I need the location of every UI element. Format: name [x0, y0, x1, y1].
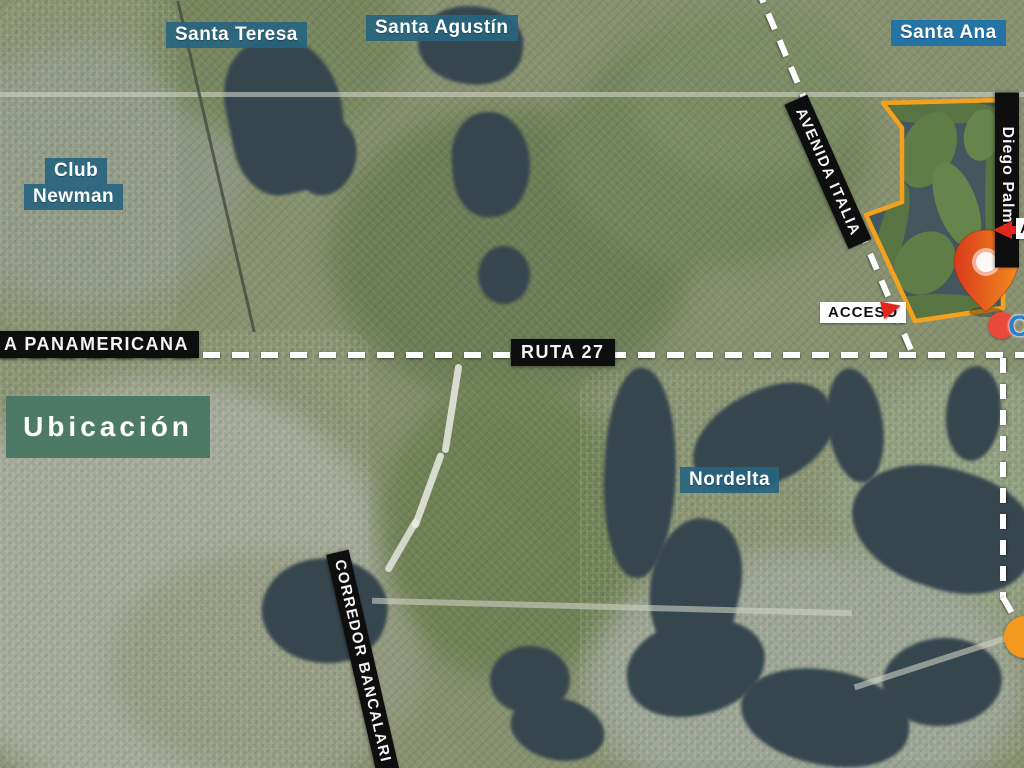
place-label-text: Santa Ana [900, 22, 997, 43]
place-label-club-newman-line1: Club [45, 158, 107, 184]
place-label-santa-agustin: Santa Agustín [366, 15, 518, 41]
ubicacion-text: Ubicación [23, 411, 193, 443]
acceso-label-partial: ACCESO [1016, 218, 1024, 239]
place-label-santa-ana: Santa Ana [891, 20, 1006, 46]
place-label-text: Santa Teresa [175, 24, 298, 45]
office-text: Of [1008, 310, 1024, 343]
place-label-nordelta: Nordelta [680, 467, 779, 493]
place-label-text: Newman [33, 186, 114, 207]
road-label-panamericana: A PANAMERICANA [0, 331, 199, 358]
place-label-text: Nordelta [689, 469, 770, 490]
road-label-text: A PANAMERICANA [4, 334, 189, 354]
road-label-diego-palma: Diego Palma [995, 92, 1019, 267]
ubicacion-banner: Ubicación [6, 396, 210, 458]
office-partial-text: Of [1008, 310, 1024, 344]
road-label-text: RUTA 27 [521, 342, 605, 362]
place-label-text: Club [54, 160, 98, 181]
place-label-santa-teresa: Santa Teresa [166, 22, 307, 48]
acceso-text: ACCESO [1020, 220, 1024, 237]
place-label-club-newman-line2: Newman [24, 184, 123, 210]
road-label-ruta27: RUTA 27 [511, 339, 615, 366]
right-access-arrow-icon [993, 221, 1012, 239]
place-label-text: Santa Agustín [375, 17, 509, 38]
property-overlay [0, 0, 1024, 768]
map-canvas: A PANAMERICANA RUTA 27 AVENIDA ITALIA Di… [0, 0, 1024, 768]
road-label-text: Diego Palma [999, 126, 1016, 233]
